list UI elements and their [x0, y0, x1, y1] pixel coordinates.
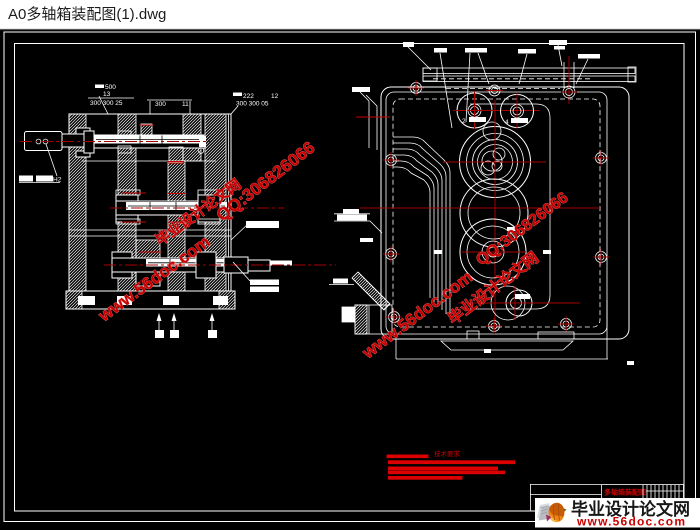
svg-text:300 300 25: 300 300 25 — [90, 100, 123, 107]
svg-text:多轴箱装配图: 多轴箱装配图 — [604, 488, 646, 497]
svg-text:技术要求: 技术要求 — [434, 449, 461, 458]
svg-text:www.56doc.com: www.56doc.com — [576, 515, 685, 529]
svg-text:500: 500 — [105, 84, 116, 91]
svg-text:222: 222 — [243, 93, 254, 100]
svg-text:300 300 05: 300 300 05 — [236, 101, 269, 108]
svg-text:300: 300 — [155, 101, 166, 108]
svg-text:2: 2 — [462, 118, 466, 125]
svg-text:12: 12 — [271, 93, 279, 100]
svg-text:A0多轴箱装配图(1).dwg: A0多轴箱装配图(1).dwg — [8, 6, 166, 23]
svg-text:4: 4 — [505, 119, 509, 126]
svg-text:11: 11 — [182, 101, 189, 108]
svg-text:13: 13 — [103, 91, 111, 98]
